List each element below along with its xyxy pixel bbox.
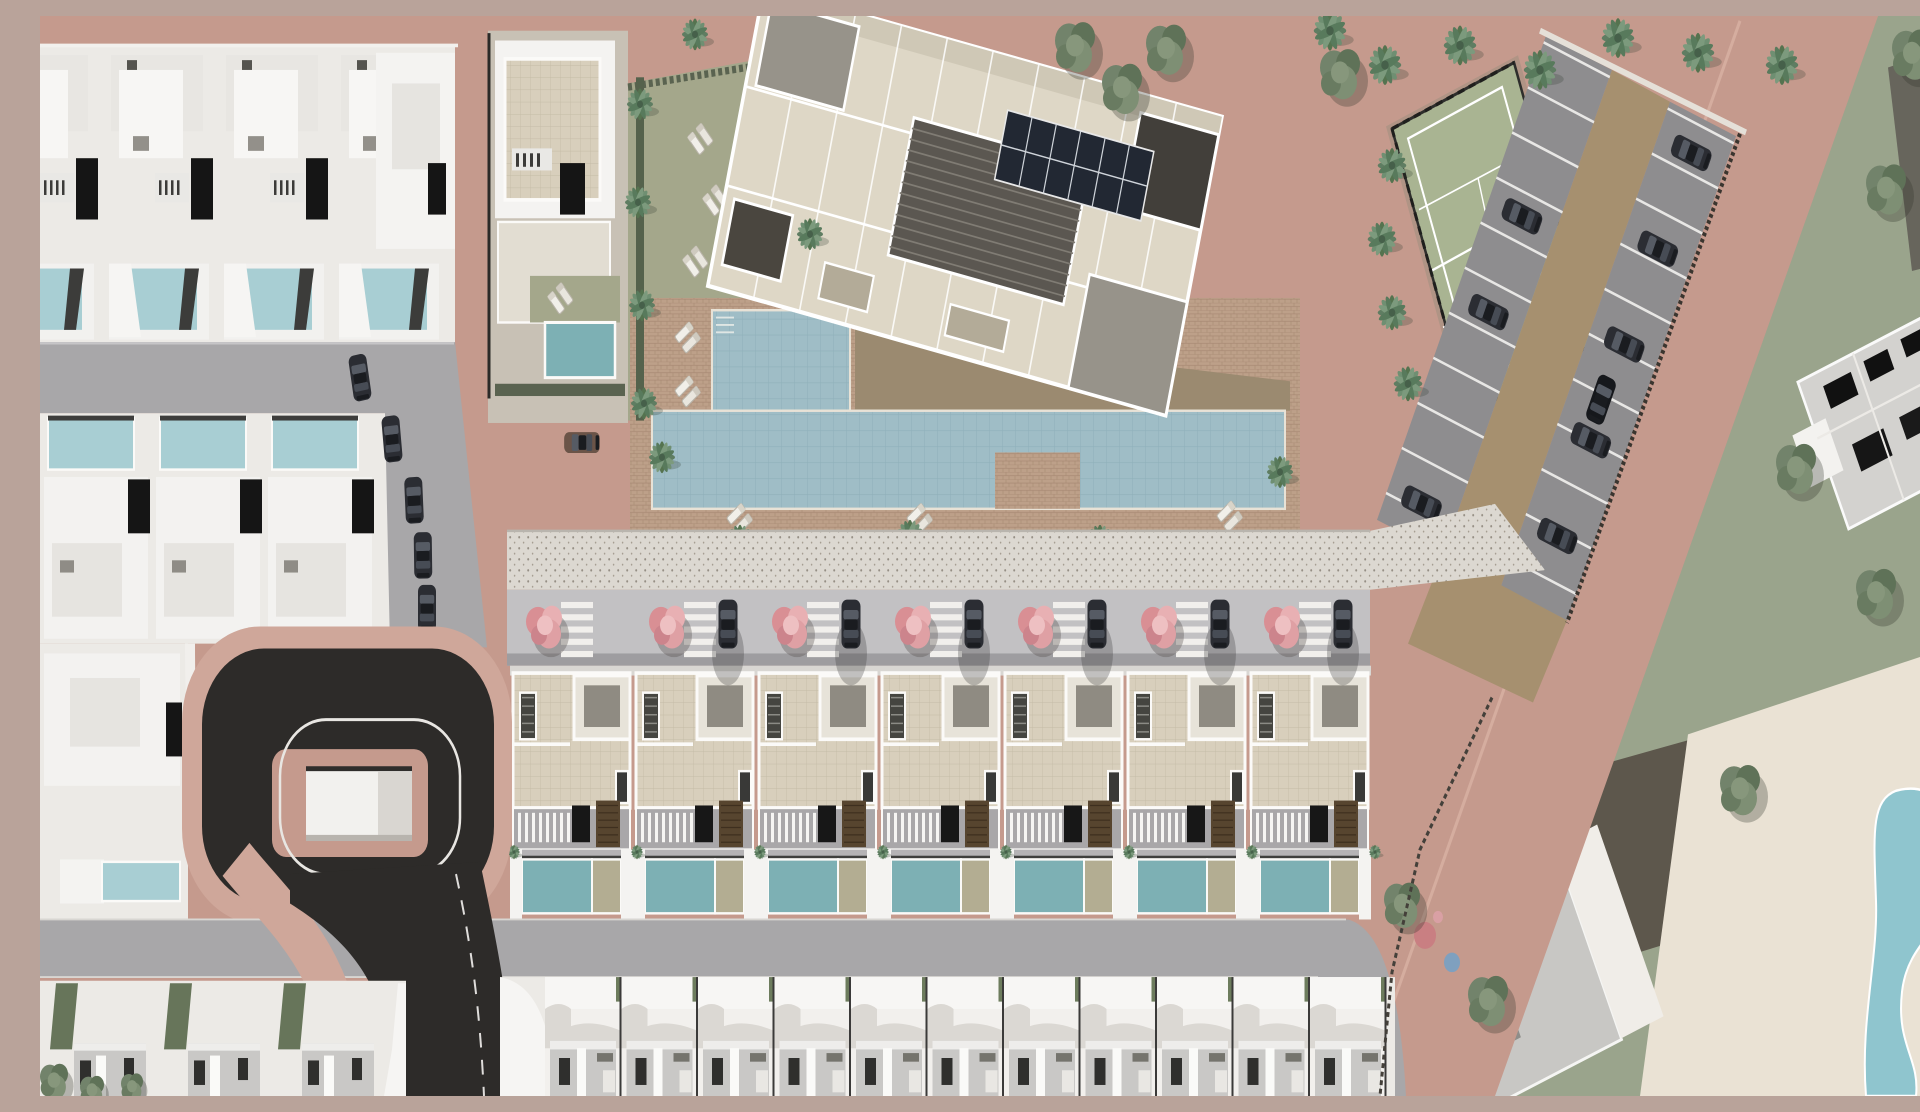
palm-hedge [636,77,644,420]
garage-door [352,479,374,533]
driveway-car [1088,600,1107,649]
middle-villa [879,666,1002,920]
street-car [404,477,424,524]
bottom-villa [545,977,622,1096]
bottom-villa [1157,977,1234,1096]
middle-villa [1125,666,1248,920]
street-car [414,532,433,579]
site-plan-render: Top-down 3D architectural render of a co… [40,16,1920,1096]
pool [272,418,358,469]
roof-terrace-sw [722,199,793,281]
bottom-left-block [40,981,406,1096]
bottom-villa [1234,977,1311,1096]
middle-villa-row [508,666,1383,920]
driveway-car [842,600,861,649]
driveway-car [719,600,738,649]
bottom-villa [1310,977,1387,1096]
island-utility-building [306,766,412,841]
bottom-villa [1004,977,1081,1096]
garage-door [128,479,150,533]
roof-terrace-se [1068,274,1187,415]
left-block-row2 [44,416,374,639]
bottom-villa [775,977,852,1096]
bottom-villa [622,977,699,1096]
pool [48,418,134,469]
middle-villa [756,666,879,920]
middle-villa [633,666,756,920]
street-car [418,585,436,631]
driveway-car [965,600,984,649]
bottom-villa-units [545,977,1387,1096]
garage-door [240,479,262,533]
bottom-villa-row [500,977,1395,1096]
pool-peninsula-deck [995,452,1080,508]
pool [160,418,246,469]
sales-office-parcel [488,31,628,453]
bottom-villa [928,977,1005,1096]
driveway-car [1211,600,1230,649]
aerial-render-canvas [40,16,1920,1096]
middle-villa [1248,666,1371,920]
middle-villa [1002,666,1125,920]
bottom-villa [698,977,775,1096]
bottom-villa [851,977,928,1096]
bottom-villa [1081,977,1158,1096]
middle-villa [510,666,633,920]
parked-car-brown [564,432,600,453]
driveway-car [1334,600,1353,649]
